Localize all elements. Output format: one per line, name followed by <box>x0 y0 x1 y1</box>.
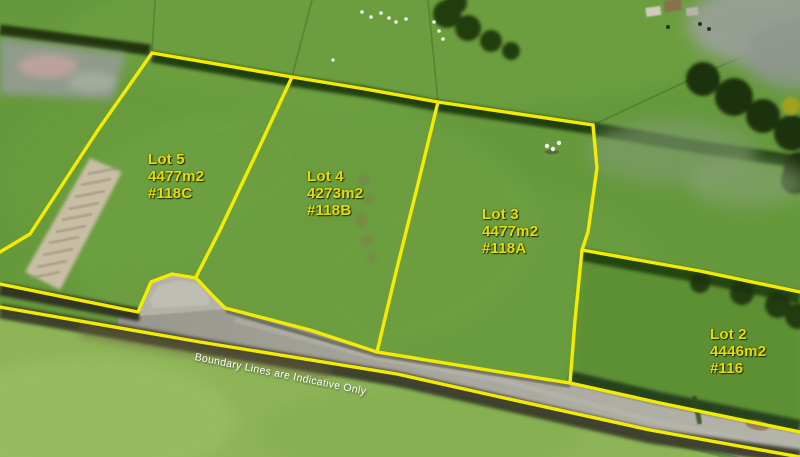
lot-area: 4273m2 <box>307 185 363 202</box>
lot-area: 4477m2 <box>148 168 204 185</box>
lot-address: #118B <box>307 202 363 219</box>
lot4-label: Lot 4 4273m2 #118B <box>307 168 363 219</box>
aerial-photo: Lot 5 4477m2 #118C Lot 4 4273m2 #118B Lo… <box>0 0 800 457</box>
lot-address: #116 <box>710 360 766 377</box>
lot-name: Lot 4 <box>307 168 363 185</box>
aerial-photo-art <box>0 0 800 457</box>
lot2-label: Lot 2 4446m2 #116 <box>710 326 766 377</box>
lot-address: #118A <box>482 240 538 257</box>
lot-name: Lot 3 <box>482 206 538 223</box>
lot3-label: Lot 3 4477m2 #118A <box>482 206 538 257</box>
yellow-tree <box>782 97 800 115</box>
lot-name: Lot 5 <box>148 151 204 168</box>
lot5-label: Lot 5 4477m2 #118C <box>148 151 204 202</box>
lot-area: 4477m2 <box>482 223 538 240</box>
lot-area: 4446m2 <box>710 343 766 360</box>
lot-name: Lot 2 <box>710 326 766 343</box>
lot-address: #118C <box>148 185 204 202</box>
